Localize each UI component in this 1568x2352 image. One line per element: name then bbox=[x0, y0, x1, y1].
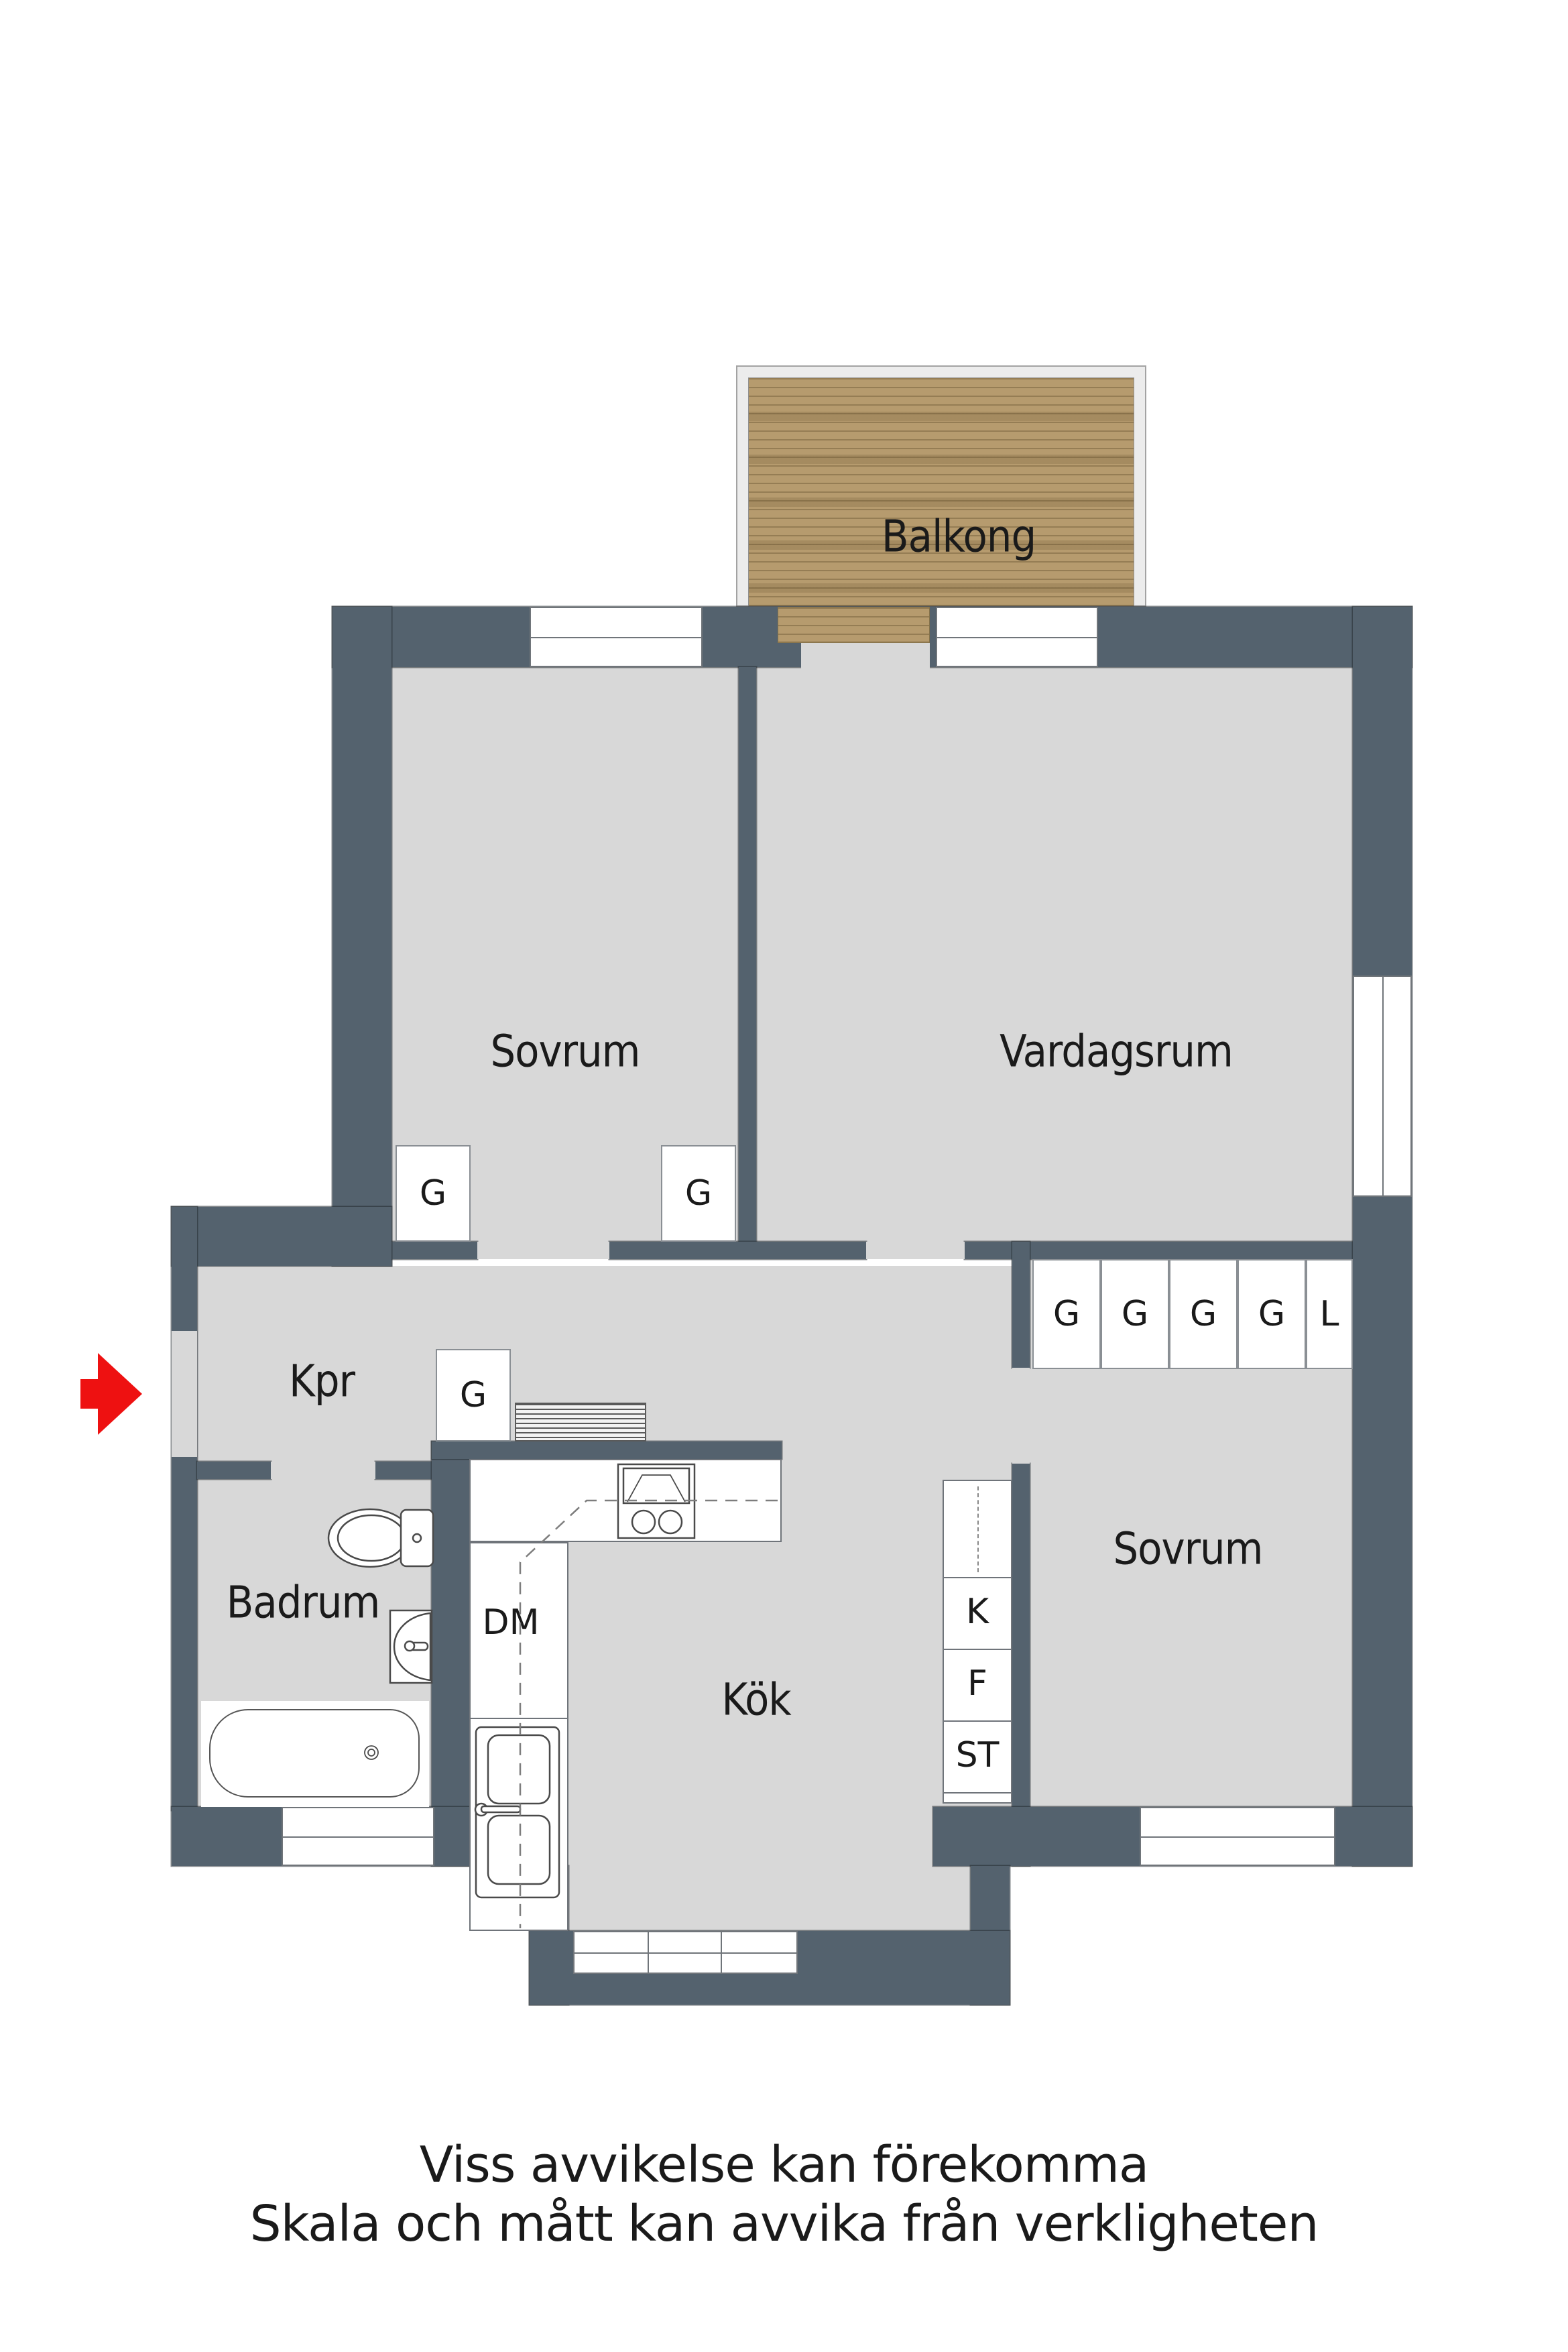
bedroom2-window bbox=[1140, 1807, 1335, 1866]
bedroom1-label: Sovrum bbox=[490, 1026, 640, 1077]
bathroom-sink bbox=[387, 1608, 434, 1686]
hallway-label: Kpr bbox=[289, 1356, 355, 1407]
wall-left-upper bbox=[333, 607, 391, 1266]
living-room-floor bbox=[756, 667, 1353, 1242]
bathroom-window bbox=[282, 1807, 434, 1866]
closet-l-bedroom2: L bbox=[1306, 1259, 1353, 1369]
closet-g-bedroom2-2: G bbox=[1101, 1259, 1169, 1369]
disclaimer-line2: Skala och mått kan avvika från verklighe… bbox=[0, 2194, 1568, 2253]
closet-label: G bbox=[1258, 1294, 1285, 1334]
living-room-opening bbox=[866, 1242, 965, 1259]
bathroom-label: Badrum bbox=[227, 1577, 380, 1629]
wall-right bbox=[1353, 607, 1412, 1866]
balcony-deck bbox=[748, 377, 1134, 607]
closet-g-bedroom2-3: G bbox=[1169, 1259, 1238, 1369]
wall-bedroom1-bottom-a bbox=[391, 1242, 477, 1259]
closet-g-bedroom1-right: G bbox=[661, 1145, 736, 1242]
wall-bathroom-top-left bbox=[197, 1462, 271, 1479]
wall-bedroom1-living bbox=[739, 667, 756, 1242]
closet-g-bedroom2-1: G bbox=[1032, 1259, 1101, 1369]
wall-left-lower bbox=[172, 1207, 197, 1810]
wall-bedroom2-door-stub bbox=[1012, 1242, 1030, 1368]
closet-label: G bbox=[460, 1375, 487, 1415]
entrance-door-opening bbox=[172, 1331, 197, 1457]
balcony-door-step bbox=[778, 607, 930, 643]
wall-bathroom-top-right bbox=[375, 1462, 432, 1479]
floor-plan: G G G G G G G L K F ST DM bbox=[0, 0, 1568, 2352]
disclaimer-line1: Viss avvikelse kan förekomma bbox=[0, 2135, 1568, 2194]
closet-g-bedroom1-left: G bbox=[396, 1145, 471, 1242]
living-room-label: Vardagsrum bbox=[1000, 1026, 1233, 1077]
bedroom1-window bbox=[530, 607, 703, 667]
closet-label: G bbox=[420, 1173, 446, 1214]
closet-label: G bbox=[685, 1173, 712, 1214]
wall-bedroom1-bottom-b bbox=[609, 1242, 866, 1259]
closet-label: G bbox=[1122, 1294, 1148, 1334]
living-room-right-window bbox=[1353, 976, 1412, 1197]
radiator bbox=[515, 1403, 646, 1442]
wall-hallway-top bbox=[172, 1207, 391, 1266]
closet-g-bedroom2-4: G bbox=[1238, 1259, 1306, 1369]
wall-bathroom-kitchen bbox=[432, 1442, 469, 1866]
kitchen-label: Kök bbox=[721, 1674, 790, 1726]
living-room-top-window bbox=[936, 607, 1098, 667]
bathtub bbox=[209, 1709, 420, 1798]
toilet bbox=[323, 1505, 436, 1572]
closet-label: G bbox=[1190, 1294, 1217, 1334]
closet-label: G bbox=[1053, 1294, 1080, 1334]
bathtub-drain bbox=[362, 1743, 381, 1762]
bathroom-door-opening bbox=[271, 1462, 375, 1479]
closet-label: L bbox=[1320, 1294, 1339, 1334]
entrance-arrow-icon bbox=[79, 1352, 143, 1436]
bedroom2-label: Sovrum bbox=[1113, 1523, 1262, 1575]
bedroom1-door-opening bbox=[477, 1242, 609, 1259]
balcony-label: Balkong bbox=[882, 511, 1036, 563]
closet-g-hallway: G bbox=[436, 1349, 511, 1442]
disclaimer-text: Viss avvikelse kan förekomma Skala och m… bbox=[0, 2135, 1568, 2253]
